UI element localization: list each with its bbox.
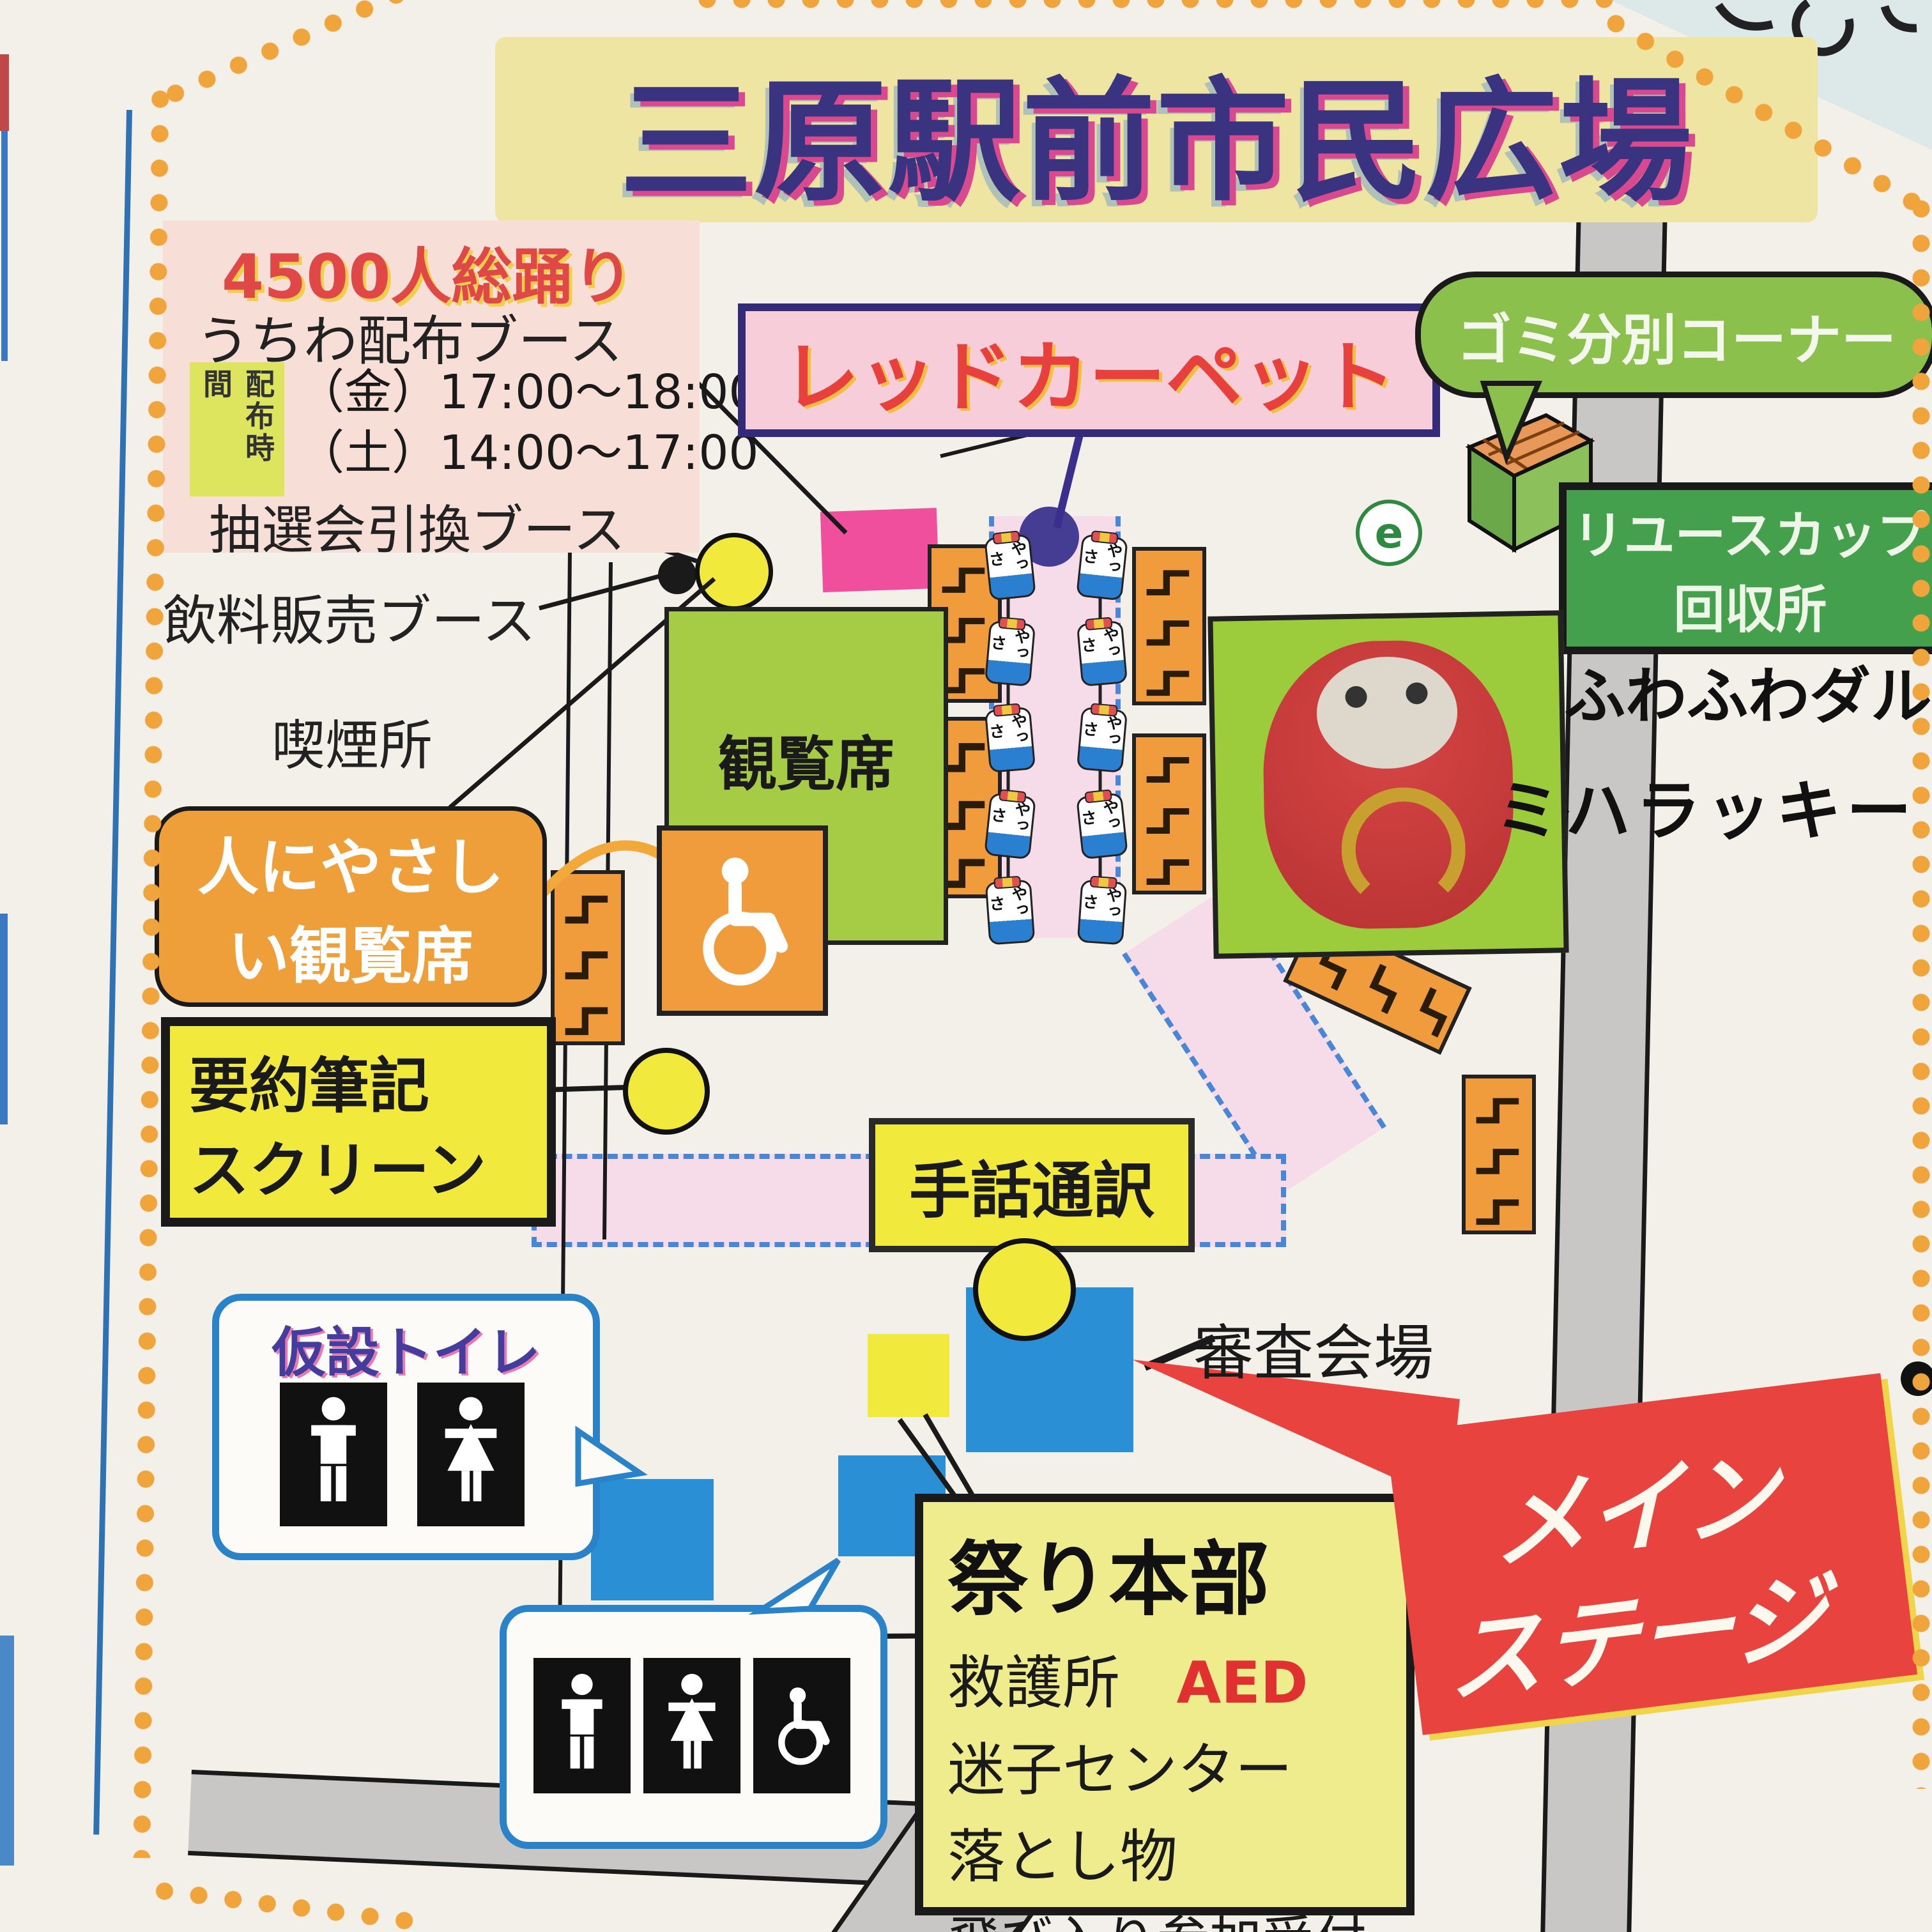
bubble-tails	[0, 0, 1932, 1932]
festival-map: やっさ やっさ やっさ やっさ やっさ やっさ やっさ やっさ やっさ やっさ …	[0, 0, 1932, 1932]
